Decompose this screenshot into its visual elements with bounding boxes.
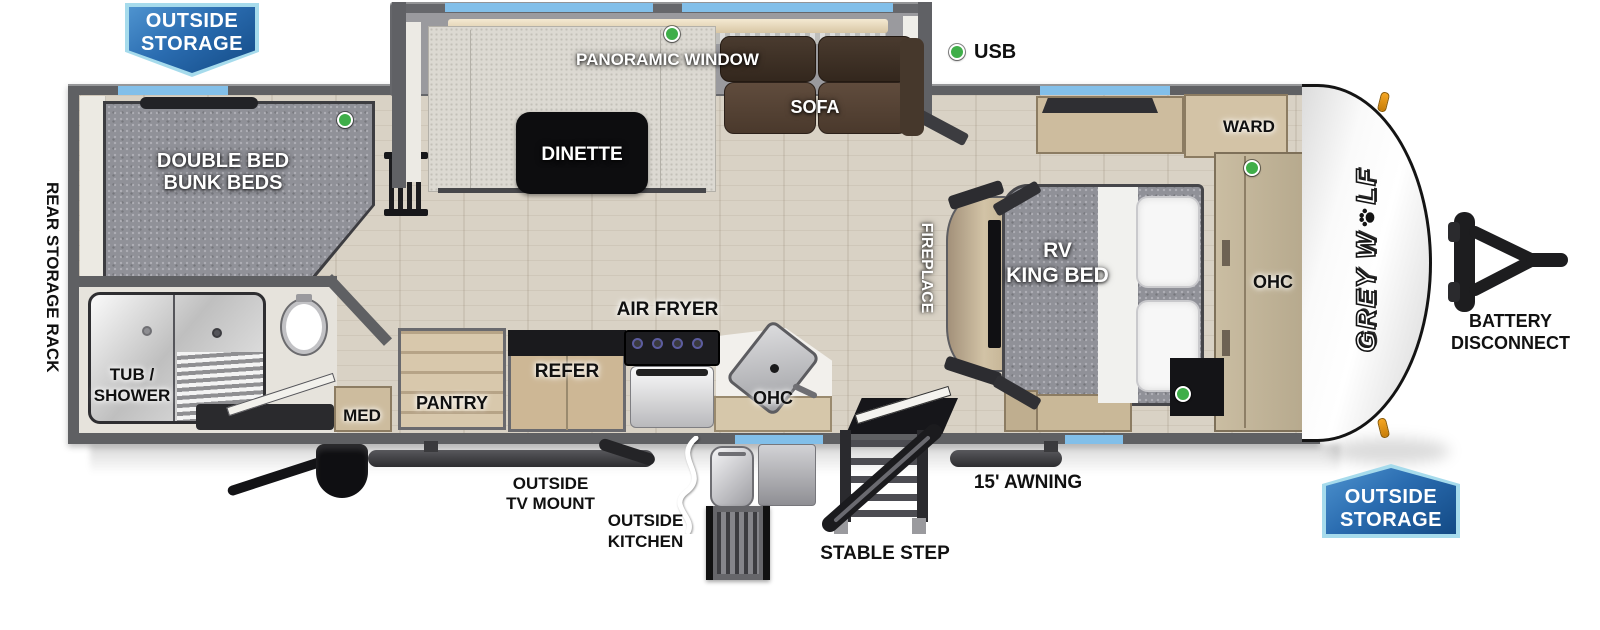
awning-bracket bbox=[1044, 441, 1058, 452]
shower-drain bbox=[212, 328, 222, 338]
usb-indicator-dot bbox=[664, 26, 680, 42]
burner bbox=[692, 338, 703, 349]
wardrobe-hinge bbox=[1222, 240, 1230, 266]
ward-label: WARD bbox=[1209, 117, 1289, 137]
outside-kitchen-line2: KITCHEN bbox=[588, 531, 703, 552]
battery-line1: BATTERY bbox=[1428, 310, 1593, 332]
badge-top-line2: STORAGE bbox=[125, 33, 259, 56]
king-bed-line1: RV bbox=[1000, 238, 1115, 263]
badge-top-line1: OUTSIDE bbox=[125, 10, 259, 33]
bathroom-wall bbox=[79, 276, 337, 287]
stable-step bbox=[812, 424, 962, 538]
outside-kitchen-panel bbox=[758, 444, 816, 506]
outside-tv-mount-label: OUTSIDE TV MOUNT bbox=[493, 474, 608, 514]
brand-part2: LF bbox=[1351, 168, 1382, 205]
window-strip bbox=[1040, 86, 1170, 95]
brand-part1: GREY W bbox=[1351, 232, 1382, 353]
badge-bottom-line2: STORAGE bbox=[1322, 509, 1460, 532]
bunk-headboard bbox=[140, 97, 258, 109]
battery-disconnect-label: BATTERY DISCONNECT bbox=[1428, 310, 1593, 354]
tv-mount-line1: OUTSIDE bbox=[493, 474, 608, 494]
king-bed-line2: KING BED bbox=[1000, 263, 1115, 288]
bunk-label-line2: BUNK BEDS bbox=[123, 172, 323, 194]
bunkroom-wall-panel bbox=[80, 96, 106, 278]
dinette-label: DINETTE bbox=[516, 144, 648, 166]
usb-legend-label: USB bbox=[974, 41, 1016, 64]
wardrobe-hinge bbox=[1222, 330, 1230, 356]
burner bbox=[632, 338, 643, 349]
cooler-handle bbox=[718, 452, 746, 456]
brand-logo: GREY W LF bbox=[1346, 160, 1386, 360]
bunk-label: DOUBLE BED BUNK BEDS bbox=[123, 150, 323, 194]
burner bbox=[652, 338, 663, 349]
oven-handle bbox=[636, 369, 708, 376]
window-strip bbox=[682, 3, 893, 12]
ohc-bedroom-label: OHC bbox=[1233, 272, 1313, 293]
window-strip bbox=[445, 3, 653, 12]
usb-legend-dot bbox=[949, 44, 965, 60]
awning-label: 15' AWNING bbox=[958, 472, 1098, 494]
bed-sheet-band bbox=[1098, 187, 1138, 403]
tub-shower-line1: TUB / bbox=[82, 364, 182, 385]
panoramic-window-label: PANORAMIC WINDOW bbox=[560, 50, 775, 70]
fireplace-label: FIREPLACE bbox=[915, 208, 935, 328]
ohc-kitchen-label: OHC bbox=[728, 388, 818, 409]
sofa-label: SOFA bbox=[770, 97, 860, 118]
marker-light bbox=[1377, 417, 1391, 439]
marker-light bbox=[1377, 91, 1391, 113]
usb-indicator-dot bbox=[1244, 160, 1260, 176]
stable-step-label: STABLE STEP bbox=[815, 543, 955, 565]
tub-shower-line2: SHOWER bbox=[82, 385, 182, 406]
window-strip bbox=[1065, 435, 1123, 444]
outside-griddle bbox=[706, 506, 770, 580]
cap-shadow bbox=[1330, 438, 1450, 464]
med-label: MED bbox=[332, 406, 392, 426]
bedroom-tv bbox=[1042, 98, 1158, 113]
toilet-tank bbox=[296, 294, 312, 302]
bed-pillow bbox=[1136, 196, 1200, 288]
paw-print-icon bbox=[1356, 208, 1377, 229]
slideout-left-panel bbox=[406, 22, 421, 182]
awning-tube bbox=[950, 450, 1062, 467]
battery-line2: DISCONNECT bbox=[1428, 332, 1593, 354]
usb-indicator-dot bbox=[1175, 386, 1191, 402]
usb-indicator-dot bbox=[337, 112, 353, 128]
slideout-left-wall bbox=[392, 2, 406, 188]
pantry-label: PANTRY bbox=[400, 393, 504, 414]
burner bbox=[672, 338, 683, 349]
outside-kitchen-line1: OUTSIDE bbox=[588, 510, 703, 531]
awning-bracket bbox=[424, 441, 438, 452]
toilet bbox=[282, 300, 326, 354]
refrigerator-top bbox=[508, 330, 626, 356]
outside-storage-badge-bottom: OUTSIDE STORAGE bbox=[1322, 464, 1460, 538]
sink-drain bbox=[770, 364, 779, 373]
badge-text: OUTSIDE STORAGE bbox=[125, 10, 259, 56]
tub-drain bbox=[142, 326, 152, 336]
outside-storage-badge-top: OUTSIDE STORAGE bbox=[125, 3, 259, 77]
badge-text: OUTSIDE STORAGE bbox=[1322, 486, 1460, 532]
pantry bbox=[398, 328, 506, 430]
floorplan-diagram: DINETTE SOFA PANORAMIC WINDOW USB DOUBLE… bbox=[0, 0, 1600, 630]
refer-label: REFER bbox=[510, 361, 624, 383]
king-bed-label: RV KING BED bbox=[1000, 238, 1115, 288]
tub-shower-label: TUB / SHOWER bbox=[82, 364, 182, 406]
outside-kitchen-label: OUTSIDE KITCHEN bbox=[588, 510, 703, 552]
air-fryer-label: AIR FRYER bbox=[590, 299, 745, 321]
tv-mount-base bbox=[316, 444, 368, 498]
rear-storage-rack-label: REAR STORAGE RACK bbox=[42, 182, 62, 342]
window-strip bbox=[118, 86, 228, 95]
dinette-bench-line bbox=[470, 30, 471, 190]
vanity-counter bbox=[196, 404, 334, 430]
window-strip bbox=[735, 435, 823, 444]
bunk-label-line1: DOUBLE BED bbox=[123, 150, 323, 172]
sofa-armrest bbox=[900, 38, 924, 136]
badge-bottom-line1: OUTSIDE bbox=[1322, 486, 1460, 509]
